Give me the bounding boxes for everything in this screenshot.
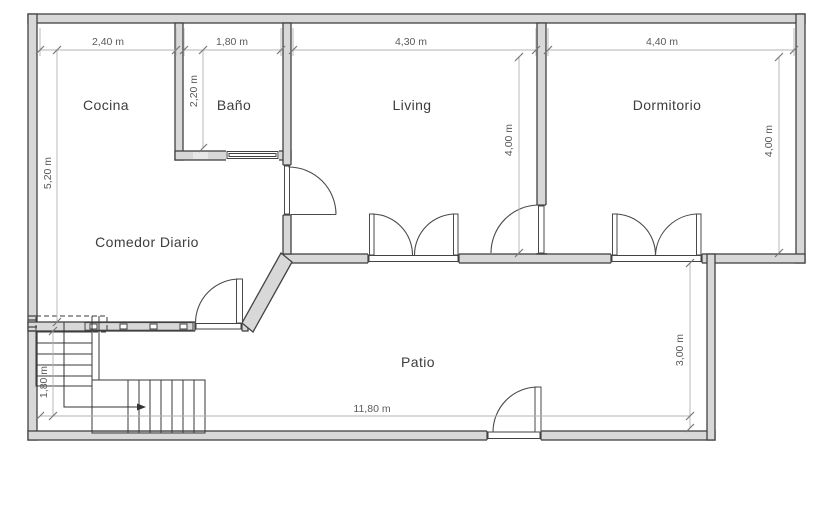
dimension-label-stairs-width: 1,80 m xyxy=(38,366,50,398)
dimension-label-dormitorio-depth: 4,00 m xyxy=(763,125,775,157)
door-leaf-comedor xyxy=(237,279,243,323)
doubledoor-left-arc-dormitorio xyxy=(615,214,656,255)
labels-group: Cocina Baño Living Dormitorio Comedor Di… xyxy=(38,36,775,415)
wall-diagonal xyxy=(242,253,292,332)
doubledoor-right-leaf-living xyxy=(454,214,459,255)
comedor-window-pane xyxy=(90,324,97,329)
wall-rooms-bottom xyxy=(283,254,805,263)
room-label-living: Living xyxy=(393,97,432,113)
living-doubledoor-threshold xyxy=(369,256,458,262)
dimension-label-patio-depth: 3,00 m xyxy=(674,334,686,366)
doubledoor-right-arc-dormitorio xyxy=(656,214,699,255)
dimension-label-bano-depth: 2,20 m xyxy=(188,75,200,107)
floor-plan-drawing: Cocina Baño Living Dormitorio Comedor Di… xyxy=(0,0,828,523)
dormitorio-doubledoor-threshold xyxy=(612,256,701,262)
windows-group xyxy=(28,152,701,439)
walls-group xyxy=(28,14,805,440)
door-swing-arc-patio xyxy=(493,387,538,432)
floor-plan: Cocina Baño Living Dormitorio Comedor Di… xyxy=(0,0,828,523)
dimension-label-living-width: 4,30 m xyxy=(395,36,427,48)
door-leaf-living-dormitorio xyxy=(539,206,545,253)
room-label-bano: Baño xyxy=(217,97,251,113)
room-label-cocina: Cocina xyxy=(83,97,129,113)
bano-window-glazing xyxy=(229,154,276,157)
stairs-group xyxy=(36,316,205,433)
stairs-walk-arrow xyxy=(137,404,146,411)
dimension-label-living-depth: 4,00 m xyxy=(503,124,515,156)
room-label-comedor: Comedor Diario xyxy=(95,234,199,250)
wall-patio-right xyxy=(707,254,715,440)
comedor-window-pane xyxy=(150,324,157,329)
doubledoor-left-leaf-dormitorio xyxy=(613,214,618,255)
dimensions-group xyxy=(36,28,798,432)
comedor-window-pane xyxy=(180,324,187,329)
door-swing-arc-comedor-living xyxy=(289,167,337,215)
door-swing-arc-comedor xyxy=(196,279,240,323)
doubledoor-left-leaf-living xyxy=(370,214,375,255)
stairs-stringer xyxy=(92,316,99,433)
room-label-dormitorio: Dormitorio xyxy=(633,97,702,113)
comedor-window-strip xyxy=(85,323,193,331)
dimension-label-cocina-width: 2,40 m xyxy=(92,36,124,48)
wall-exterior-top xyxy=(28,14,805,23)
door-leaf-patio xyxy=(535,387,541,432)
wall-comedor-living xyxy=(283,23,291,254)
wall-exterior-right xyxy=(796,14,805,263)
dimension-label-bano-width: 1,80 m xyxy=(216,36,248,48)
dimension-label-dormitorio-width: 4,40 m xyxy=(646,36,678,48)
patio-door-threshold xyxy=(488,432,540,439)
wall-exterior-bottom xyxy=(28,431,715,440)
comedor-door-threshold xyxy=(196,324,241,330)
opening-bano-door xyxy=(193,152,208,159)
comedor-window-pane xyxy=(120,324,127,329)
dimension-label-west-depth: 5,20 m xyxy=(42,157,54,189)
dimension-label-patio-width: 11,80 m xyxy=(353,403,390,415)
room-label-patio: Patio xyxy=(401,354,435,370)
doubledoor-right-leaf-dormitorio xyxy=(697,214,702,255)
door-swing-arc-living-dormitorio xyxy=(491,205,539,253)
door-leaf-comedor-living xyxy=(285,166,290,214)
doubledoor-left-arc-living xyxy=(372,214,413,255)
doubledoor-right-arc-living xyxy=(415,214,456,255)
